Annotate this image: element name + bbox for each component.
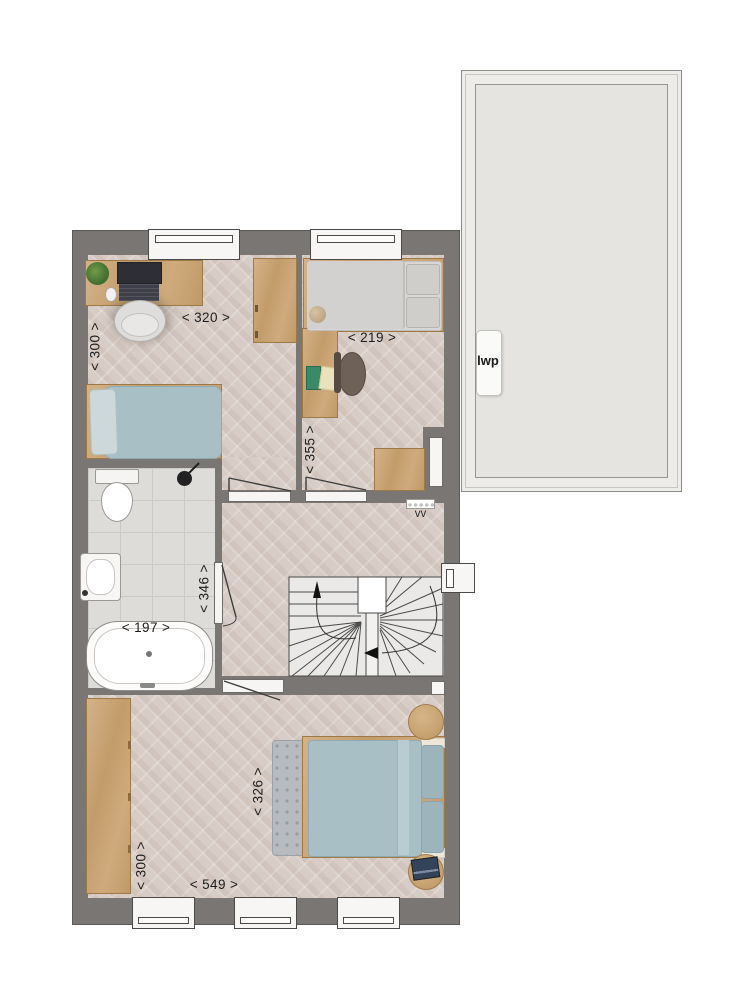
window-glass-bar (343, 917, 394, 924)
laptop-keyboard-icon (119, 284, 159, 301)
hallway-floor (222, 503, 444, 676)
dim-bedroom1-depth: < 300 > (88, 315, 103, 379)
ventilation-label: vv (406, 508, 435, 520)
window-top-left (148, 229, 240, 260)
nightstand-round-top (408, 704, 444, 740)
teddy-bear-icon (309, 306, 326, 323)
roof-panel (475, 84, 668, 478)
dim-bathroom-depth: < 346 > (197, 557, 212, 621)
dim-master-depth: < 300 > (134, 834, 149, 898)
floor-plan-canvas: lwp (0, 0, 750, 1000)
window-stairwell (441, 563, 475, 593)
dim-master-width: < 549 > (182, 877, 246, 892)
wardrobe-bedroom1 (253, 258, 297, 343)
window-glass-bar (446, 569, 454, 588)
bed1-pillow (89, 389, 118, 456)
wardrobe-master (86, 698, 131, 894)
window-glass-bar (240, 917, 291, 924)
wardrobe-handle (255, 305, 258, 312)
bed1-duvet (104, 386, 222, 459)
window-bottom-left (132, 897, 195, 929)
roof-edge-frame (465, 74, 678, 488)
dim-bathroom-width: < 197 > (114, 620, 178, 635)
bedroom1-entry-floor (222, 457, 296, 490)
master-bed-pillow (421, 801, 444, 853)
bedroom2-door-threshold (305, 491, 367, 502)
plant-icon (86, 262, 109, 285)
bedroom1-door-threshold (228, 491, 291, 502)
window-glass-bar (317, 235, 395, 243)
window-glass-bar (155, 235, 233, 243)
master-door-threshold (222, 679, 284, 693)
desk-chair-bedroom1 (114, 300, 166, 342)
window-glass-bar (138, 917, 189, 924)
dim-bedroom1-width: < 320 > (174, 310, 238, 325)
dim-master-bed-zone: < 326 > (251, 760, 266, 824)
bed-bench-master (272, 740, 305, 856)
bathroom-door-threshold (214, 562, 223, 624)
washbasin-tap-icon (82, 590, 88, 596)
wardrobe-handle (128, 741, 131, 749)
bathtub-drain (146, 651, 152, 657)
wardrobe-handle (128, 793, 131, 801)
shower-head-icon (177, 471, 192, 486)
dim-bedroom2-depth: < 355 > (303, 418, 318, 482)
master-bed-pillow (421, 745, 444, 799)
wardrobe-handle (128, 845, 131, 853)
bathtub-faucet-icon (140, 683, 155, 688)
flat-roof (461, 70, 682, 492)
dim-bedroom2-width: < 219 > (340, 330, 404, 345)
side-table-bedroom2 (374, 448, 425, 491)
laptop-screen-icon (117, 262, 162, 284)
magazine-icon (411, 856, 441, 881)
mouse-icon (105, 287, 117, 302)
window-top-right (310, 229, 402, 260)
duvet-fold (397, 740, 409, 855)
bed2-pillow (406, 264, 440, 295)
heat-pump-label: lwp (471, 353, 505, 368)
bed2-pillow (406, 297, 440, 328)
window-bottom-right (337, 897, 400, 929)
wardrobe-handle (255, 331, 258, 338)
master-wall-niche (431, 681, 445, 695)
washbasin-bowl (86, 559, 115, 595)
desk-chair2-backrest (334, 352, 341, 393)
chair-seat (121, 313, 159, 337)
window-bottom-middle (234, 897, 297, 929)
bedroom2-niche-window (429, 437, 443, 487)
desk-chair-bedroom2 (338, 352, 366, 396)
